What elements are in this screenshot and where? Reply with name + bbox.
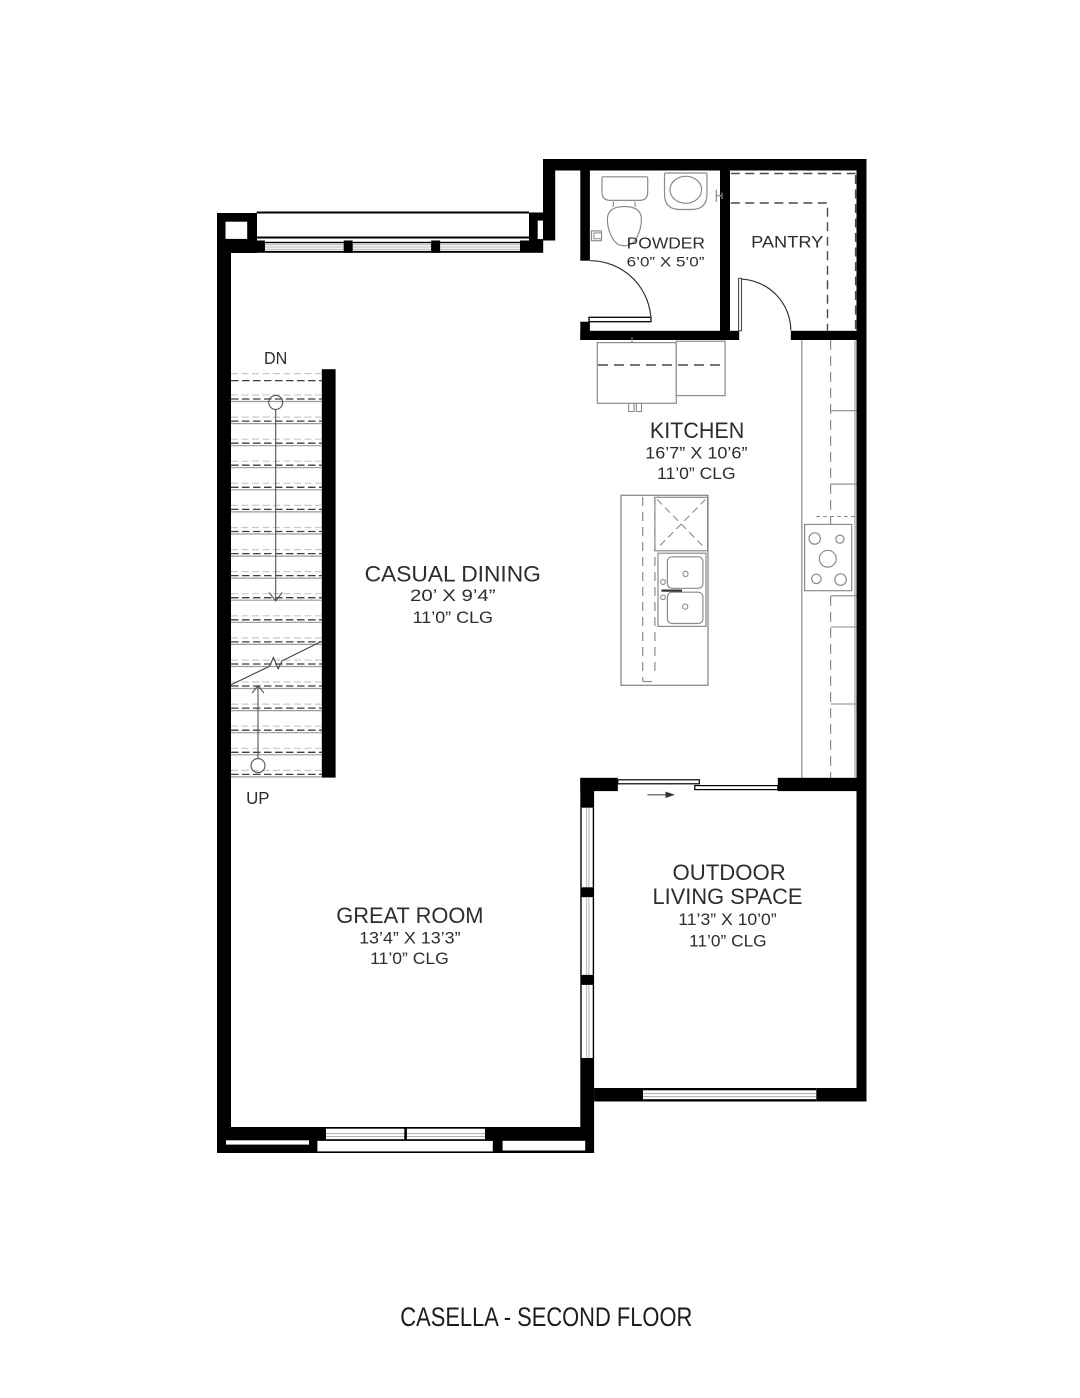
svg-text:13’4” X 13’3”: 13’4” X 13’3” (359, 929, 461, 947)
svg-text:11’0” CLG: 11’0” CLG (370, 950, 449, 968)
svg-text:KITCHEN: KITCHEN (650, 418, 744, 443)
svg-text:11’0” CLG: 11’0” CLG (413, 609, 493, 627)
svg-text:PANTRY: PANTRY (751, 233, 823, 252)
svg-text:CASELLA - SECOND FLOOR: CASELLA - SECOND FLOOR (400, 1302, 692, 1332)
svg-text:LIVING SPACE: LIVING SPACE (653, 884, 803, 909)
svg-text:20’ X 9’4”: 20’ X 9’4” (410, 587, 496, 605)
svg-text:UP: UP (246, 788, 270, 808)
svg-text:16’7” X 10’6”: 16’7” X 10’6” (645, 445, 747, 463)
svg-text:DN: DN (264, 348, 287, 368)
svg-text:11’0” CLG: 11’0” CLG (689, 933, 767, 951)
svg-text:CASUAL DINING: CASUAL DINING (365, 562, 541, 587)
svg-text:11’3” X 10’0”: 11’3” X 10’0” (678, 911, 776, 929)
svg-text:GREAT ROOM: GREAT ROOM (336, 903, 483, 928)
svg-text:11’0” CLG: 11’0” CLG (657, 465, 736, 483)
svg-text:6’0” X 5’0”: 6’0” X 5’0” (627, 254, 705, 270)
svg-text:POWDER: POWDER (627, 235, 705, 252)
svg-text:OUTDOOR: OUTDOOR (673, 860, 786, 885)
